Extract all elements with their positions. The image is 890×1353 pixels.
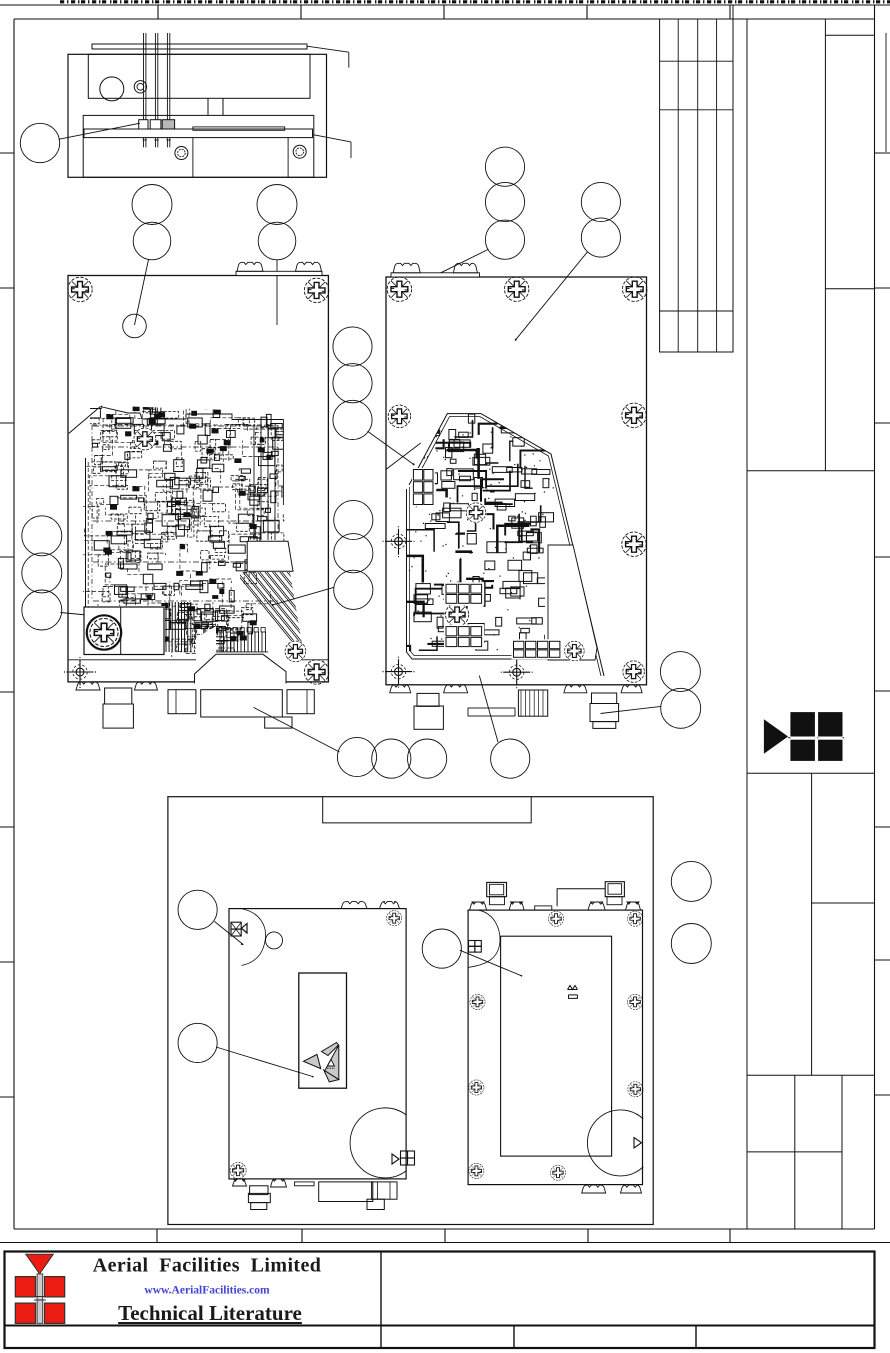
svg-text:Aerial Facilities Limited: Aerial Facilities Limited — [93, 1255, 322, 1277]
svg-text:www.AerialFacilities.com: www.AerialFacilities.com — [144, 1285, 270, 1297]
svg-text:Technical Literature: Technical Literature — [118, 1301, 302, 1325]
